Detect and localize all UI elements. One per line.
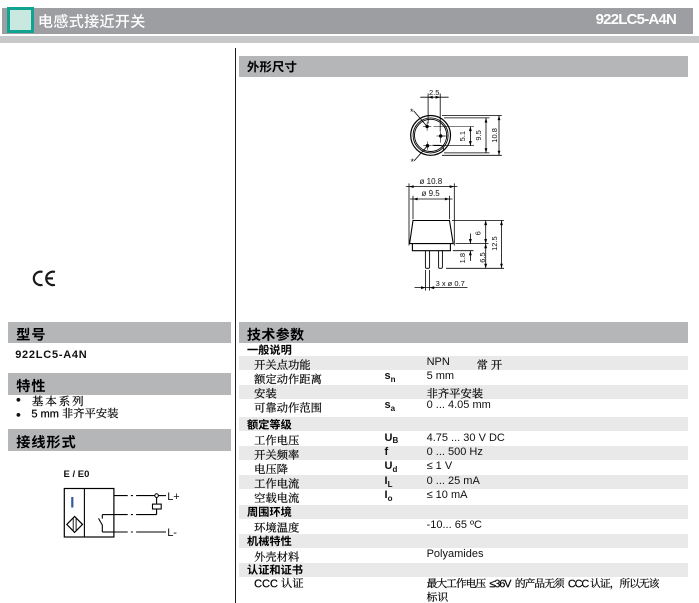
svg-text:*: * — [411, 157, 415, 167]
svg-text:5.1: 5.1 — [458, 131, 467, 141]
svg-text:ø 9.5: ø 9.5 — [421, 189, 440, 198]
svg-text:*: * — [410, 107, 414, 117]
svg-text:12.5: 12.5 — [490, 236, 499, 251]
svg-text:2.5: 2.5 — [429, 88, 439, 97]
svg-text:1.8: 1.8 — [458, 253, 467, 263]
svg-text:3 x ø 0.7: 3 x ø 0.7 — [436, 279, 465, 288]
svg-text:6.5: 6.5 — [478, 252, 487, 262]
svg-text:10.8: 10.8 — [490, 128, 499, 143]
svg-text:6: 6 — [473, 231, 482, 235]
svg-text:9.5: 9.5 — [474, 130, 483, 140]
svg-text:ø 10.8: ø 10.8 — [420, 177, 443, 186]
